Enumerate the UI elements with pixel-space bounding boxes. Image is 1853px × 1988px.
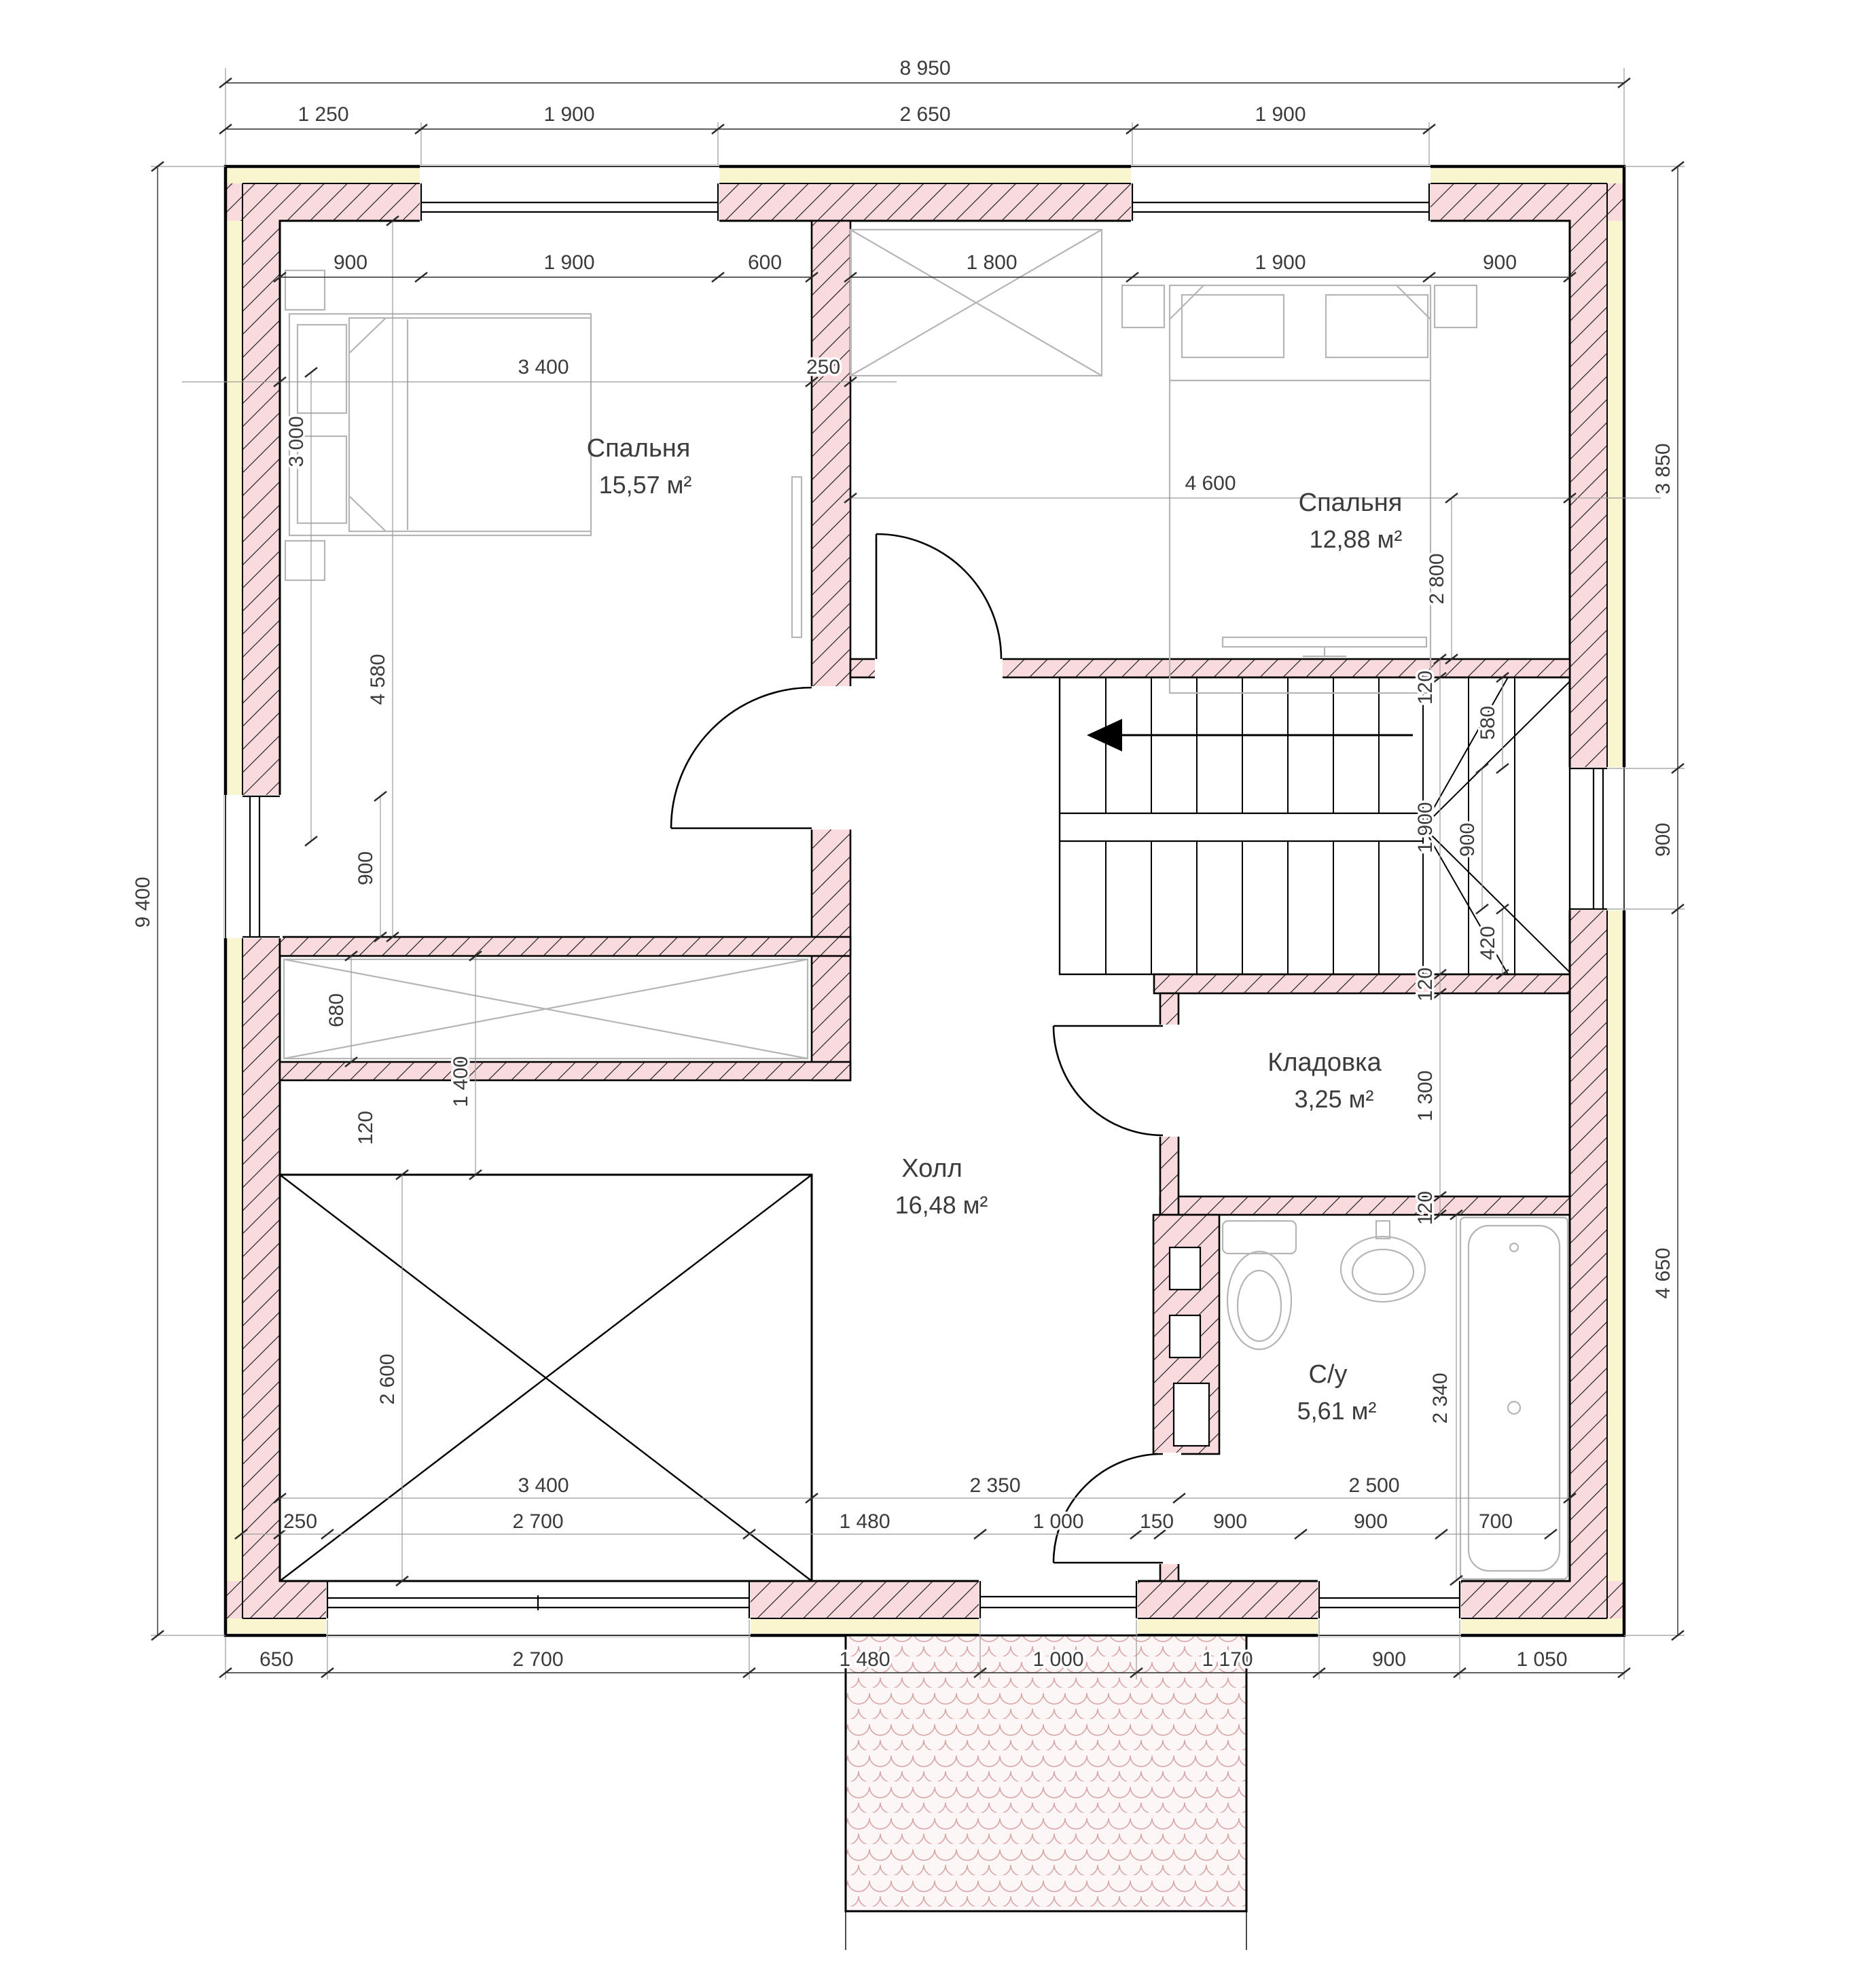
- door-storage: [1054, 1026, 1163, 1135]
- dim-bottom-7: 1 050: [1516, 1648, 1567, 1671]
- dim-storage-wall: 120: [1414, 1191, 1437, 1225]
- dim-stair-wall-bottom: 120: [1414, 968, 1437, 1001]
- dim-top-1: 1 250: [298, 103, 348, 126]
- dim-niche: 680: [325, 993, 348, 1027]
- dim-b1-depth: 4 580: [367, 654, 389, 705]
- tv-bedroom1: [792, 477, 802, 637]
- dim-niche-wall: 120: [355, 1111, 377, 1145]
- entrance-porch: [846, 1635, 1246, 1950]
- bathtub-icon: [1460, 1218, 1568, 1579]
- room-name-bedroom1: Спальня: [587, 434, 691, 463]
- floor-plan-page: 8 950 1 250 1 900 2 650 1 900 900 1 900 …: [0, 0, 1853, 1988]
- dim-botin2-6: 900: [1213, 1510, 1247, 1533]
- room-area-bedroom1: 15,57 м²: [599, 471, 692, 499]
- bed-bedroom1: [285, 270, 591, 580]
- dim-bottom-3: 1 480: [839, 1648, 890, 1671]
- dim-stair-wall-top: 120: [1414, 671, 1437, 705]
- room-name-hall: Холл: [901, 1154, 963, 1183]
- dim-centerwall: 250: [806, 356, 840, 378]
- dim-botin1-3: 2 500: [1348, 1474, 1399, 1497]
- dim-top-3: 2 650: [899, 103, 950, 126]
- dim-bottom-2: 2 700: [512, 1648, 563, 1671]
- dim-botin2-7: 900: [1354, 1510, 1388, 1533]
- dim-botin2-8: 700: [1479, 1510, 1513, 1533]
- dim-b2-depth: 2 800: [1426, 553, 1448, 604]
- room-area-bathroom: 5,61 м²: [1297, 1397, 1377, 1425]
- dim-top-2: 1 900: [543, 103, 594, 126]
- tv-bedroom2: [1223, 637, 1426, 656]
- dim-botin2-5: 150: [1140, 1510, 1174, 1533]
- room-area-storage: 3,25 м²: [1295, 1085, 1374, 1113]
- dim-b1-width: 3 400: [518, 356, 569, 378]
- dim-left-window: 900: [355, 851, 377, 885]
- floor-plan-drawing: 8 950 1 250 1 900 2 650 1 900 900 1 900 …: [0, 0, 1853, 1988]
- dim-botin1-1: 3 400: [518, 1474, 569, 1497]
- dim-bottom-6: 900: [1372, 1648, 1406, 1671]
- door-bedroom1: [671, 688, 812, 828]
- dim-total-height: 9 400: [132, 876, 154, 927]
- dim-topin-r3: 900: [1483, 251, 1517, 274]
- dim-right-3: 4 650: [1652, 1247, 1674, 1298]
- dim-right-2: 900: [1652, 823, 1674, 857]
- dim-bed: 3 000: [285, 416, 308, 467]
- dim-void-depth: 2 600: [376, 1353, 399, 1404]
- dim-bottom-1: 650: [259, 1648, 293, 1671]
- room-name-bedroom2: Спальня: [1299, 489, 1403, 517]
- room-area-hall: 16,48 м²: [895, 1191, 988, 1219]
- room-name-bathroom: С/у: [1309, 1360, 1348, 1389]
- toilet-icon: [1223, 1221, 1296, 1349]
- dim-storage-depth: 1 300: [1414, 1070, 1437, 1121]
- dim-botin2-1: 250: [283, 1510, 317, 1533]
- dim-bottom-5: 1 170: [1202, 1648, 1253, 1671]
- dim-topin-r2: 1 900: [1255, 251, 1306, 274]
- dim-botin1-2: 2 350: [969, 1474, 1020, 1497]
- dim-bathtub: 2 340: [1429, 1372, 1452, 1423]
- dim-stair-below-win: 420: [1477, 926, 1499, 960]
- dim-topin-r1: 1 800: [966, 251, 1017, 274]
- dim-stair-window: 900: [1456, 823, 1479, 857]
- dim-hall-gap: 1 400: [450, 1056, 472, 1107]
- stair-direction-arrow-icon: [1087, 719, 1122, 751]
- dim-botin2-4: 1 000: [1032, 1510, 1083, 1533]
- dim-topin-l1: 900: [334, 251, 367, 274]
- door-bathroom: [1054, 1454, 1163, 1563]
- door-bedroom2: [876, 534, 1001, 659]
- dim-topin-l3: 600: [748, 251, 782, 274]
- wardrobe-niche: [284, 959, 808, 1059]
- dim-total-width: 8 950: [899, 57, 950, 79]
- dim-top-4: 1 900: [1255, 103, 1306, 126]
- dim-botin2-2: 2 700: [512, 1510, 563, 1533]
- dim-stair-run: 1 900: [1414, 802, 1437, 853]
- room-name-storage: Кладовка: [1267, 1048, 1382, 1077]
- dim-bottom-4: 1 000: [1032, 1648, 1083, 1671]
- dim-stair-above-win: 580: [1477, 706, 1499, 740]
- room-area-bedroom2: 12,88 м²: [1310, 525, 1403, 553]
- dim-b2-width: 4 600: [1185, 472, 1236, 495]
- sink-icon: [1341, 1221, 1425, 1302]
- dim-botin2-3: 1 480: [839, 1510, 890, 1533]
- dim-topin-l2: 1 900: [543, 251, 594, 274]
- dim-right-1: 3 850: [1652, 443, 1674, 494]
